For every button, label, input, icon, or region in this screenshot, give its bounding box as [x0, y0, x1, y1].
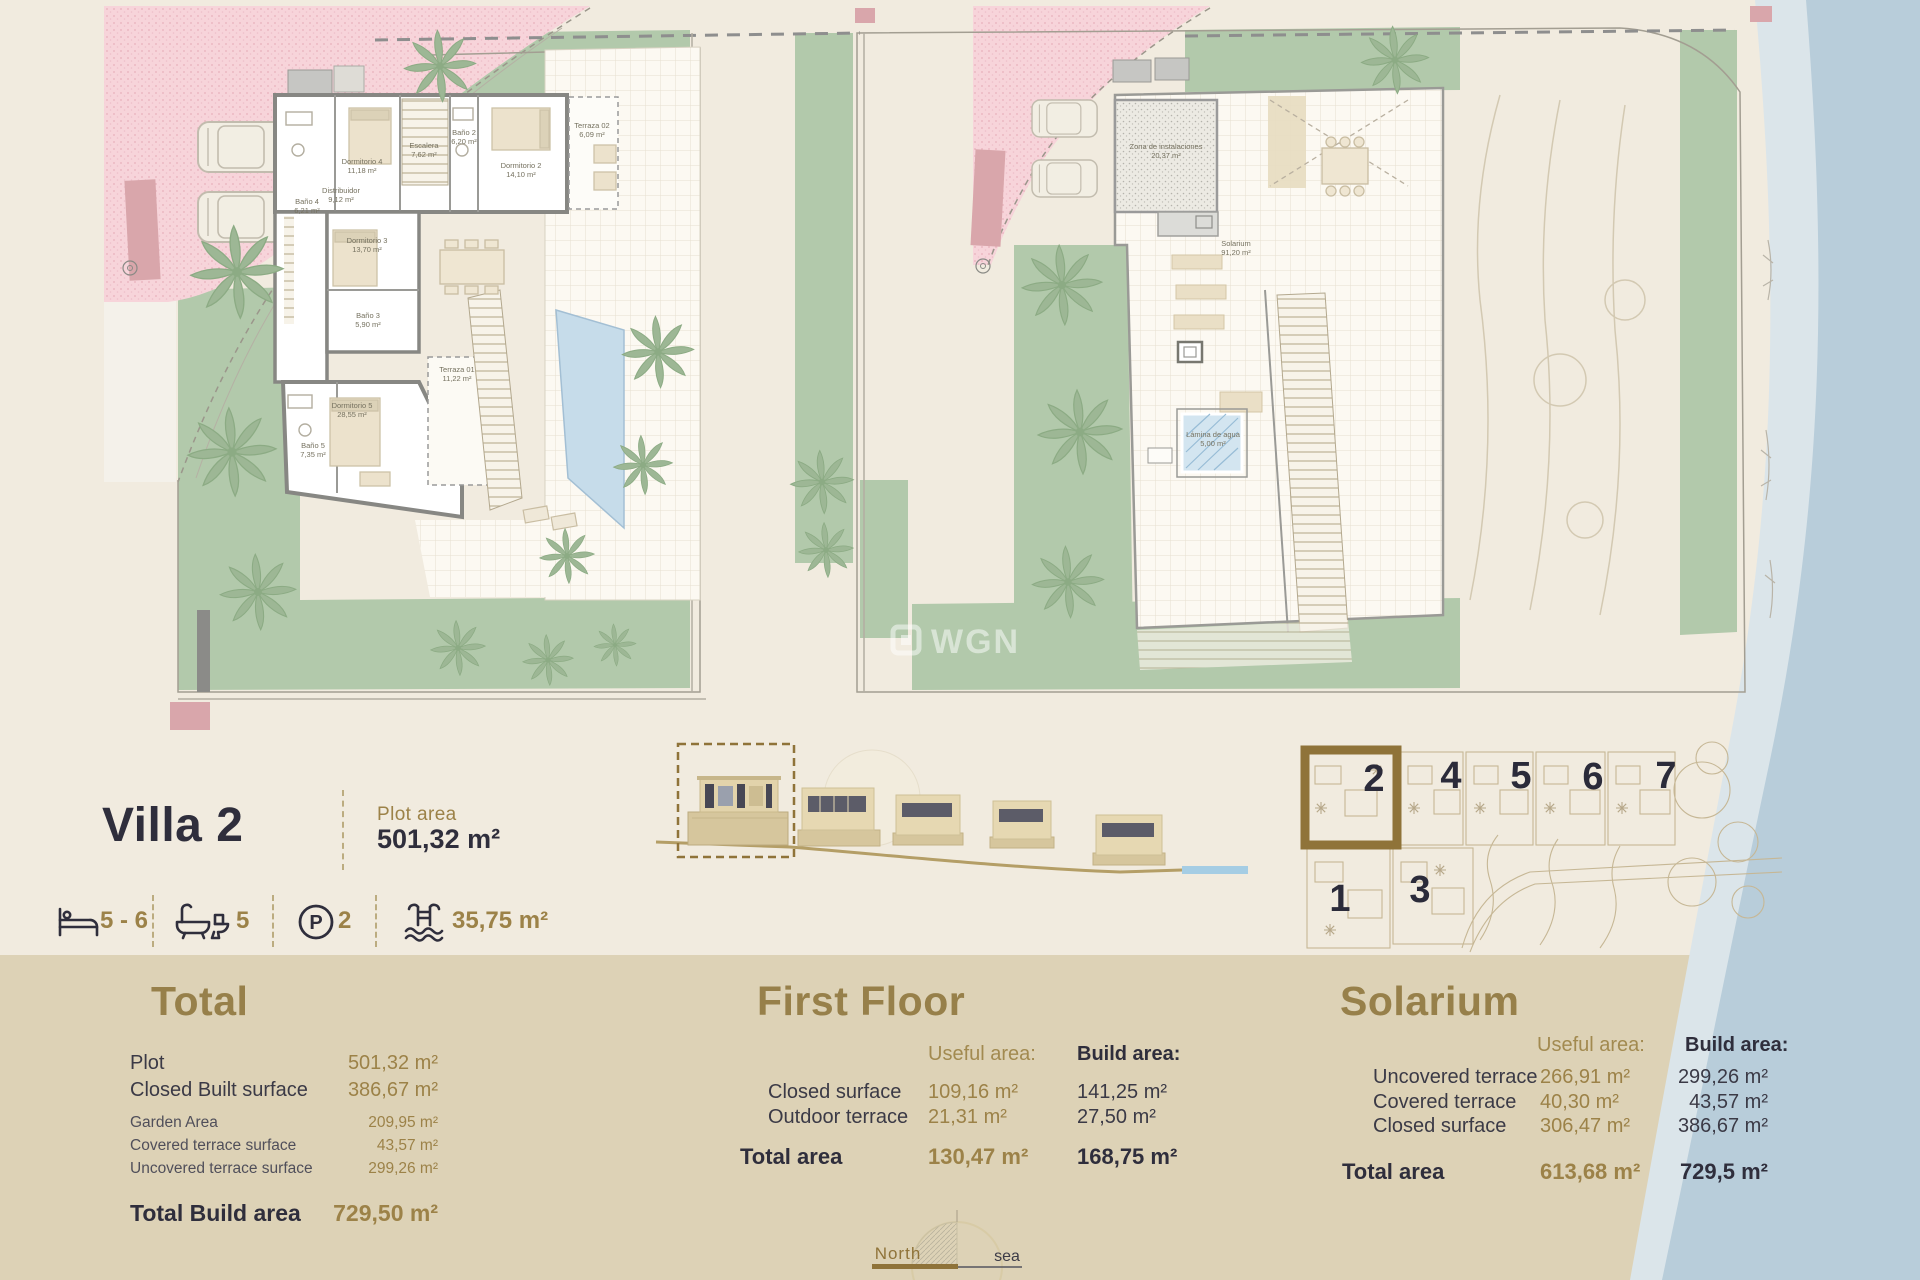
- build-area-header: Build area:: [1077, 1043, 1180, 1066]
- svg-text:9,12 m²: 9,12 m²: [328, 195, 354, 204]
- svg-text:Baño 5: Baño 5: [301, 441, 325, 450]
- sea-label: sea: [994, 1248, 1020, 1265]
- svg-text:Lámina de agua: Lámina de agua: [1186, 430, 1241, 439]
- row-build: 141,25 m²: [1077, 1081, 1167, 1104]
- svg-text:Escalera: Escalera: [409, 141, 439, 150]
- svg-text:6: 6: [1582, 756, 1603, 798]
- row-build: 43,57 m²: [1676, 1091, 1768, 1114]
- svg-text:11,22 m²: 11,22 m²: [442, 374, 472, 383]
- north-label: North: [875, 1244, 922, 1263]
- svg-text:11,18 m²: 11,18 m²: [347, 166, 377, 175]
- svg-text:5,90 m²: 5,90 m²: [355, 320, 381, 329]
- row-value: 209,95 m²: [368, 1111, 438, 1134]
- page-title: Villa 2: [102, 798, 243, 853]
- useful-area-header: Useful area:: [1537, 1034, 1645, 1057]
- row-label: Uncovered terrace surface: [130, 1157, 313, 1180]
- row-label: Closed surface: [768, 1081, 901, 1104]
- row-label: Closed surface: [1373, 1115, 1506, 1138]
- svg-text:14,10 m²: 14,10 m²: [506, 170, 536, 179]
- row-value: 43,57 m²: [377, 1134, 438, 1157]
- parking-icon: P: [296, 902, 336, 942]
- svg-text:91,20 m²: 91,20 m²: [1221, 248, 1251, 257]
- parking-count: 2: [338, 907, 351, 935]
- pool-area-value: 35,75 m²: [452, 907, 548, 935]
- svg-text:Dormitorio 5: Dormitorio 5: [332, 401, 373, 410]
- total-build-label: Total Build area: [130, 1200, 301, 1227]
- svg-text:Dormitorio 4: Dormitorio 4: [342, 157, 383, 166]
- solarium-title: Solarium: [1340, 978, 1519, 1025]
- svg-text:6,09 m²: 6,09 m²: [579, 130, 605, 139]
- total-area-useful: 130,47 m²: [928, 1144, 1028, 1170]
- svg-text:7,62 m²: 7,62 m²: [411, 150, 437, 159]
- roof-dining-table: [1322, 137, 1368, 196]
- svg-text:5: 5: [1510, 755, 1531, 797]
- row-useful: 109,16 m²: [928, 1081, 1018, 1104]
- total-area-label: Total area: [740, 1144, 842, 1170]
- svg-text:Baño 4: Baño 4: [295, 197, 319, 206]
- useful-area-header: Useful area:: [928, 1043, 1036, 1066]
- header-divider: [342, 790, 344, 870]
- total-title: Total: [151, 978, 248, 1025]
- svg-text:3: 3: [1409, 869, 1430, 911]
- svg-text:P: P: [309, 912, 322, 934]
- svg-text:Solarium: Solarium: [1221, 239, 1251, 248]
- row-value: 501,32 m²: [348, 1050, 438, 1077]
- total-area-build: 729,5 m²: [1676, 1159, 1768, 1185]
- row-label: Garden Area: [130, 1111, 218, 1134]
- svg-text:6,20 m²: 6,20 m²: [451, 137, 477, 146]
- svg-text:Dormitorio 2: Dormitorio 2: [501, 161, 542, 170]
- plot-area-label: Plot area: [377, 804, 457, 826]
- elevation-pool: [1182, 866, 1248, 874]
- beds-count: 5 - 6: [100, 907, 148, 935]
- svg-text:4: 4: [1440, 755, 1461, 797]
- row-useful: 266,91 m²: [1540, 1066, 1630, 1089]
- svg-text:Zona de instalaciones: Zona de instalaciones: [1130, 142, 1203, 151]
- row-value: 299,26 m²: [368, 1157, 438, 1180]
- svg-text:Distribuidor: Distribuidor: [322, 186, 360, 195]
- row-label: Outdoor terrace: [768, 1106, 908, 1129]
- landscape-paths: [1470, 95, 1645, 615]
- svg-text:6,21 m²: 6,21 m²: [294, 206, 320, 215]
- svg-text:Terraza 01: Terraza 01: [439, 365, 474, 374]
- sea: [1630, 0, 1920, 1280]
- svg-text:Terraza 02: Terraza 02: [574, 121, 609, 130]
- svg-text:Dormitorio 3: Dormitorio 3: [347, 236, 388, 245]
- row-useful: 21,31 m²: [928, 1106, 1007, 1129]
- first-floor-title: First Floor: [757, 978, 965, 1025]
- dining-table: [440, 240, 504, 294]
- row-label: Closed Built surface: [130, 1077, 308, 1104]
- row-label: Covered terrace surface: [130, 1134, 296, 1157]
- plot-area-value: 501,32 m²: [377, 824, 500, 855]
- svg-text:5,00 m²: 5,00 m²: [1200, 439, 1226, 448]
- pool-icon: [402, 898, 448, 944]
- total-build-row: Total Build area 729,50 m²: [130, 1200, 438, 1227]
- floor-plan-first-floor: Baño 46,21 m² Dormitorio 411,18 m² Escal…: [104, 6, 875, 730]
- row-label: Covered terrace: [1373, 1091, 1516, 1114]
- total-area-build: 168,75 m²: [1077, 1144, 1177, 1170]
- floor-plan-solarium: Zona de instalaciones20,37 m² Solarium91…: [857, 6, 1775, 692]
- svg-text:13,70 m²: 13,70 m²: [352, 245, 382, 254]
- svg-text:Baño 2: Baño 2: [452, 128, 476, 137]
- row-useful: 40,30 m²: [1540, 1091, 1619, 1114]
- svg-text:28,55 m²: 28,55 m²: [337, 410, 367, 419]
- svg-text:20,37 m²: 20,37 m²: [1151, 151, 1181, 160]
- total-rows: Plot501,32 m² Closed Built surface386,67…: [130, 1050, 438, 1180]
- bed-icon: [56, 903, 100, 941]
- row-build: 299,26 m²: [1676, 1066, 1768, 1089]
- bath-icon: [174, 901, 230, 943]
- baths-count: 5: [236, 907, 249, 935]
- row-label: Plot: [130, 1050, 164, 1077]
- svg-text:Baño 3: Baño 3: [356, 311, 380, 320]
- total-area-label: Total area: [1342, 1159, 1444, 1185]
- watermark-text: WGN: [931, 623, 1020, 661]
- svg-text:7,35 m²: 7,35 m²: [300, 450, 326, 459]
- total-area-useful: 613,68 m²: [1540, 1159, 1640, 1185]
- elevation-drawing: [656, 744, 1248, 874]
- row-useful: 306,47 m²: [1540, 1115, 1630, 1138]
- row-label: Uncovered terrace: [1373, 1066, 1538, 1089]
- svg-text:2: 2: [1363, 758, 1384, 800]
- svg-text:7: 7: [1655, 755, 1676, 797]
- total-build-value: 729,50 m²: [333, 1200, 438, 1227]
- row-value: 386,67 m²: [348, 1077, 438, 1104]
- svg-text:1: 1: [1329, 878, 1350, 920]
- row-build: 386,67 m²: [1676, 1115, 1768, 1138]
- elevation-villa-2: [688, 776, 788, 845]
- row-build: 27,50 m²: [1077, 1106, 1156, 1129]
- build-area-header: Build area:: [1685, 1034, 1788, 1057]
- brochure-page: Baño 46,21 m² Dormitorio 411,18 m² Escal…: [0, 0, 1920, 1280]
